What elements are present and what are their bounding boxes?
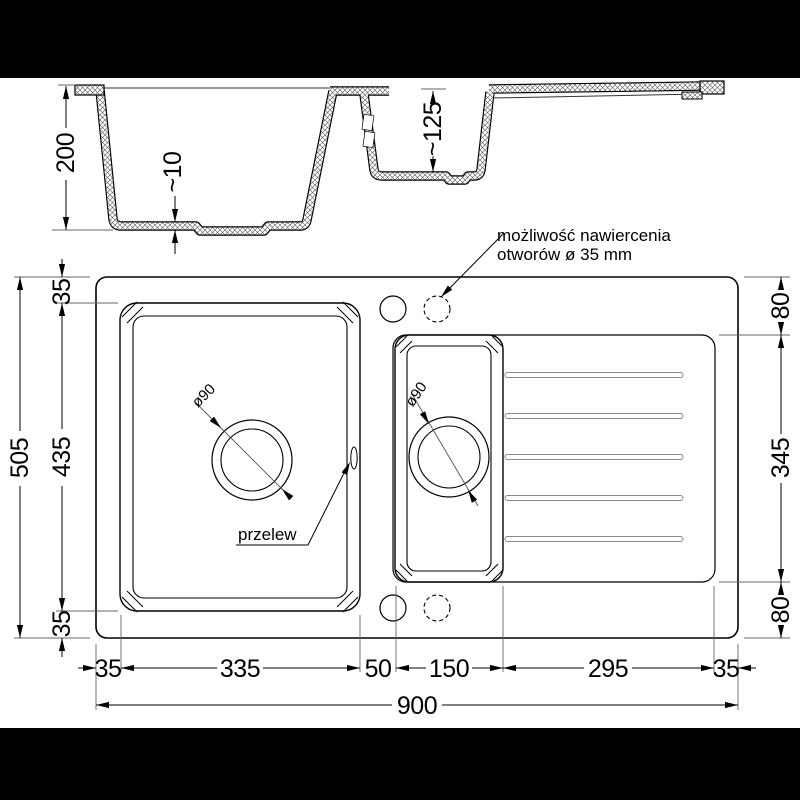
groove <box>505 373 683 378</box>
drainer-end-block <box>700 81 724 94</box>
dim-drainer-height: 345 <box>767 438 795 478</box>
dim-divider-width: 50 <box>365 655 392 683</box>
main-bowl-outer <box>120 303 360 611</box>
dim-left-margin: 35 <box>95 655 122 683</box>
dim-right-margin: 35 <box>713 655 740 683</box>
letterbox-top <box>0 0 800 78</box>
dim-margin-bottom: 35 <box>48 611 76 638</box>
dim-drainer-width: 295 <box>588 655 628 683</box>
dim-bowl-height: 435 <box>48 437 76 477</box>
small-bowl-outer <box>395 335 503 582</box>
dim-main-bowl-width: 335 <box>220 655 260 683</box>
groove <box>505 414 683 419</box>
label-overflow: przelew <box>238 525 297 544</box>
overflow-mark <box>351 447 357 469</box>
technical-drawing-page: 200 ~10 ~125 ø90 <box>0 0 800 800</box>
drainer-end-step <box>682 92 702 99</box>
note-line1: możliwość nawiercenia <box>497 226 671 245</box>
dim-margin-top: 35 <box>48 279 76 306</box>
drainer-slab-hatch <box>489 86 704 89</box>
dim-total-height: 505 <box>6 438 34 478</box>
dim-floor-thickness: ~10 <box>159 152 187 193</box>
dim-depth-small: ~125 <box>419 102 447 156</box>
dim-depth-main: 200 <box>52 133 80 173</box>
plan-view: ø90 ø90 przelew możliwość nawiercenia <box>96 226 738 638</box>
left-rim-block <box>75 85 104 95</box>
groove <box>505 455 683 460</box>
overflow-slot-lower <box>363 131 375 147</box>
groove <box>505 496 683 501</box>
dim-bottom-offset: 80 <box>767 597 795 624</box>
letterbox-bottom <box>0 728 800 800</box>
dim-small-bowl-width: 150 <box>429 655 469 683</box>
groove <box>505 537 683 542</box>
dim-total-width: 900 <box>397 692 437 720</box>
overflow-slot-upper <box>362 114 374 130</box>
dim-top-offset: 80 <box>767 293 795 320</box>
note-line2: otworów ø 35 mm <box>497 245 632 264</box>
sink-drawing-canvas: 200 ~10 ~125 ø90 <box>0 0 800 800</box>
